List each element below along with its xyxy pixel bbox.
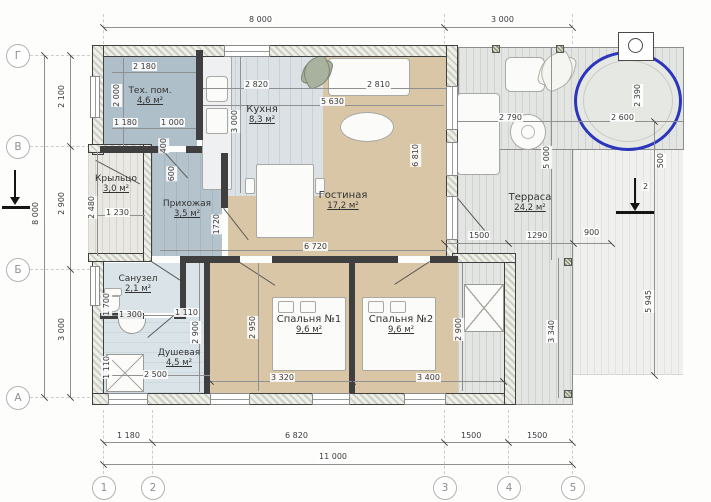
dimline-left-total <box>44 55 45 397</box>
dim-terrace-3340: 3 340 <box>546 320 557 343</box>
dim-right-500: 500 <box>655 153 666 168</box>
dimline-top <box>103 27 572 28</box>
bed-2-pillow-2 <box>390 301 406 313</box>
dim-shower-2500: 2 500 <box>143 370 168 379</box>
terrace-post-3 <box>564 258 572 266</box>
axis-line-a <box>30 397 90 398</box>
wall-tech-right <box>196 50 203 140</box>
terrace-post-2 <box>556 45 564 53</box>
axis-row-g-label: Г <box>15 50 21 62</box>
dim-left-8000: 8 000 <box>30 202 41 225</box>
kitchen-chair-1 <box>245 178 255 194</box>
dim-tech-2180: 2 180 <box>132 62 157 71</box>
dim-tech-400: 400 <box>158 138 169 153</box>
dim-bottom-11000: 11 000 <box>318 452 348 461</box>
room-area-shower: 4,5 м² <box>148 358 210 368</box>
wall-hall-west <box>143 144 152 262</box>
room-name-wc: Санузел <box>108 274 168 284</box>
bed-1-pillow-2 <box>300 301 316 313</box>
axis-row-b: Б <box>6 258 30 282</box>
dim-kitchen-2810: 2 810 <box>366 80 391 89</box>
axis-row-b-label: Б <box>14 264 21 276</box>
room-name-porch: Крыльцо <box>90 174 142 184</box>
wall-tech-bottom <box>100 146 164 153</box>
axis-row-a-label: А <box>14 392 21 404</box>
room-area-terrace: 24,2 м² <box>494 203 566 213</box>
room-name-living: Гостиная <box>298 190 388 201</box>
dim-bedroom2-2900: 2 900 <box>453 318 464 341</box>
kitchen-stove <box>206 108 228 134</box>
window-living-right-1 <box>446 86 458 130</box>
axis-col-3: 3 <box>433 476 457 500</box>
bed-1-pillow-1 <box>278 301 294 313</box>
dimline-tech-top <box>112 72 196 73</box>
window-tech-left <box>90 76 100 118</box>
dim-bottom-1500a: 1500 <box>460 431 482 440</box>
room-area-porch: 3,0 м² <box>90 184 142 194</box>
room-label-kitchen: Кухня 8,3 м² <box>232 104 292 125</box>
dim-terrace-2790: 2 790 <box>498 113 523 122</box>
room-name-bedroom1: Спальня №1 <box>268 314 350 325</box>
hot-tub <box>574 51 682 151</box>
dim-bedroom1-3320: 3 320 <box>270 373 295 382</box>
dim-wc-1110: 1 110 <box>174 308 199 317</box>
window-kitchen-top <box>224 45 270 57</box>
dim-terrace-1290: 1290 <box>526 231 548 240</box>
dim-living-6810: 6 810 <box>410 144 421 167</box>
dim-tech-1000: 1 000 <box>160 118 185 127</box>
dim-right-2: 2 <box>642 182 649 191</box>
dim-bottom-1500b: 1500 <box>526 431 548 440</box>
kitchen-sink <box>206 76 228 102</box>
room-label-bedroom2: Спальня №2 9,6 м² <box>360 314 442 335</box>
wall-exterior-bottom <box>92 393 516 405</box>
room-name-shower: Душевая <box>148 348 210 358</box>
window-bedroom1-bottom-1 <box>210 393 250 405</box>
wall-bedrooms-top-2 <box>272 256 358 263</box>
dim-bottom-6820: 6 820 <box>284 431 309 440</box>
dim-wc-1700: 1 700 <box>101 293 112 316</box>
room-area-wc: 2,1 м² <box>108 284 168 294</box>
room-name-bedroom2: Спальня №2 <box>360 314 442 325</box>
dim-top-3000: 3 000 <box>490 15 515 24</box>
axis-line-v <box>30 146 90 147</box>
room-label-living: Гостиная 17,2 м² <box>298 190 388 211</box>
window-living-right-2 <box>446 142 458 176</box>
dim-top-8000: 8 000 <box>248 15 273 24</box>
room-label-porch: Крыльцо 3,0 м² <box>90 174 142 194</box>
window-shower-bottom <box>108 393 148 405</box>
axis-col-1: 1 <box>92 476 116 500</box>
entry-arrow-right-bar <box>616 211 654 214</box>
dim-bedroom2-3400: 3 400 <box>416 373 441 382</box>
room-area-kitchen: 8,3 м² <box>232 115 292 125</box>
dimline-terrace-lower <box>444 243 611 244</box>
dim-terrace-900: 900 <box>583 228 600 237</box>
axis-col-4: 4 <box>497 476 521 500</box>
room-area-bedroom2: 9,6 м² <box>360 325 442 335</box>
wall-bedrooms-top-4 <box>430 256 458 263</box>
dim-shower-2900: 2 900 <box>190 321 201 344</box>
living-coffee-table <box>340 112 394 142</box>
chimney <box>618 32 654 61</box>
dim-bedroom1-2950: 2 950 <box>247 316 258 339</box>
dim-tech-1180: 1 180 <box>113 118 138 127</box>
dim-tech-600: 600 <box>166 166 177 181</box>
dim-left-2100: 2 100 <box>56 85 67 108</box>
dim-living-6720: 6 720 <box>303 242 328 251</box>
axis-col-1-label: 1 <box>101 482 108 494</box>
dim-kitchen-3000: 3 000 <box>229 110 240 133</box>
dim-kitchen-2820: 2 820 <box>244 80 269 89</box>
dim-porch-1230: 1 230 <box>105 208 130 217</box>
living-sofa <box>328 58 410 96</box>
window-bedroom2-bottom <box>404 393 446 405</box>
door-living-terrace <box>446 196 458 240</box>
axis-col-5: 5 <box>561 476 585 500</box>
room-name-terrace: Терраса <box>494 192 566 203</box>
wall-bedrooms-top-1 <box>180 256 240 263</box>
axis-line-b <box>30 269 90 270</box>
axis-col-4-label: 4 <box>506 482 513 494</box>
wall-bedrooms-top-3 <box>358 256 398 263</box>
dim-terrace-2600: 2 600 <box>610 113 635 122</box>
window-wc-left <box>90 266 100 306</box>
entry-arrow-right-head <box>630 203 640 211</box>
dimline-bedrooms <box>210 381 503 382</box>
dim-wc-1300: 1 300 <box>118 310 143 319</box>
dim-hall-1720: 1720 <box>211 214 222 234</box>
wall-hall-east <box>221 153 228 208</box>
entry-arrow-left-head <box>10 197 20 205</box>
floor-plan: Г В Б А 1 2 3 4 5 <box>0 0 711 502</box>
terrace-plant <box>540 54 574 88</box>
wall-tech-bottom-2 <box>186 146 202 153</box>
terrace-post-1 <box>492 45 500 53</box>
window-bedroom1-bottom-2 <box>312 393 350 405</box>
room-label-bedroom1: Спальня №1 9,6 м² <box>268 314 350 335</box>
dim-terrace-2390: 2 390 <box>632 84 643 107</box>
room-name-hall: Прихожая <box>154 199 220 209</box>
deck-open <box>573 150 683 375</box>
axis-col-2: 2 <box>141 476 165 500</box>
dim-kitchen-5630: 5 630 <box>320 97 345 106</box>
dimline-terrace-3340 <box>558 258 559 398</box>
dimline-left-intervals <box>70 55 71 397</box>
room-label-shower: Душевая 4,5 м² <box>148 348 210 368</box>
wardrobe-bedroom2 <box>464 284 504 332</box>
wall-exterior-bedroom2-top <box>452 253 516 263</box>
dimline-tech-bottom <box>112 128 196 129</box>
axis-row-v-label: В <box>14 141 21 153</box>
dim-terrace-5000: 5 000 <box>541 146 552 169</box>
dimline-terrace-upper <box>458 121 683 122</box>
entry-arrow-left-shaft <box>14 170 16 198</box>
dim-shower-1110: 1 110 <box>101 356 112 379</box>
room-area-bedroom1: 9,6 м² <box>268 325 350 335</box>
dim-bottom-1180: 1 180 <box>116 431 141 440</box>
wall-exterior-top <box>92 45 458 57</box>
room-label-terrace: Терраса 24,2 м² <box>494 192 566 213</box>
living-plant <box>303 58 331 86</box>
axis-row-v: В <box>6 135 30 159</box>
dim-terrace-1500: 1500 <box>468 231 490 240</box>
room-label-wc: Санузел 2,1 м² <box>108 274 168 294</box>
room-area-living: 17,2 м² <box>298 201 388 211</box>
axis-line-g <box>30 55 90 56</box>
dim-porch-2480: 2 480 <box>86 196 97 219</box>
bed-2-pillow-1 <box>368 301 384 313</box>
axis-row-g: Г <box>6 44 30 68</box>
dim-tech-2000: 2 000 <box>111 84 122 107</box>
dimline-bottom-intervals <box>103 442 572 443</box>
axis-row-a: А <box>6 386 30 410</box>
terrace-post-4 <box>564 390 572 398</box>
terrace-sofa <box>457 93 500 175</box>
dim-left-3000: 3 000 <box>56 318 67 341</box>
entry-arrow-right-shaft <box>634 178 636 204</box>
axis-col-2-label: 2 <box>150 482 157 494</box>
dim-right-5945: 5 945 <box>643 290 654 313</box>
axis-col-5-label: 5 <box>570 482 577 494</box>
dim-left-2900: 2 900 <box>56 192 67 215</box>
room-name-kitchen: Кухня <box>232 104 292 115</box>
entry-arrow-left-bar <box>2 206 30 209</box>
wall-bedroom1-left <box>204 263 210 393</box>
axis-col-3-label: 3 <box>442 482 449 494</box>
dimline-bottom-total <box>103 464 572 465</box>
